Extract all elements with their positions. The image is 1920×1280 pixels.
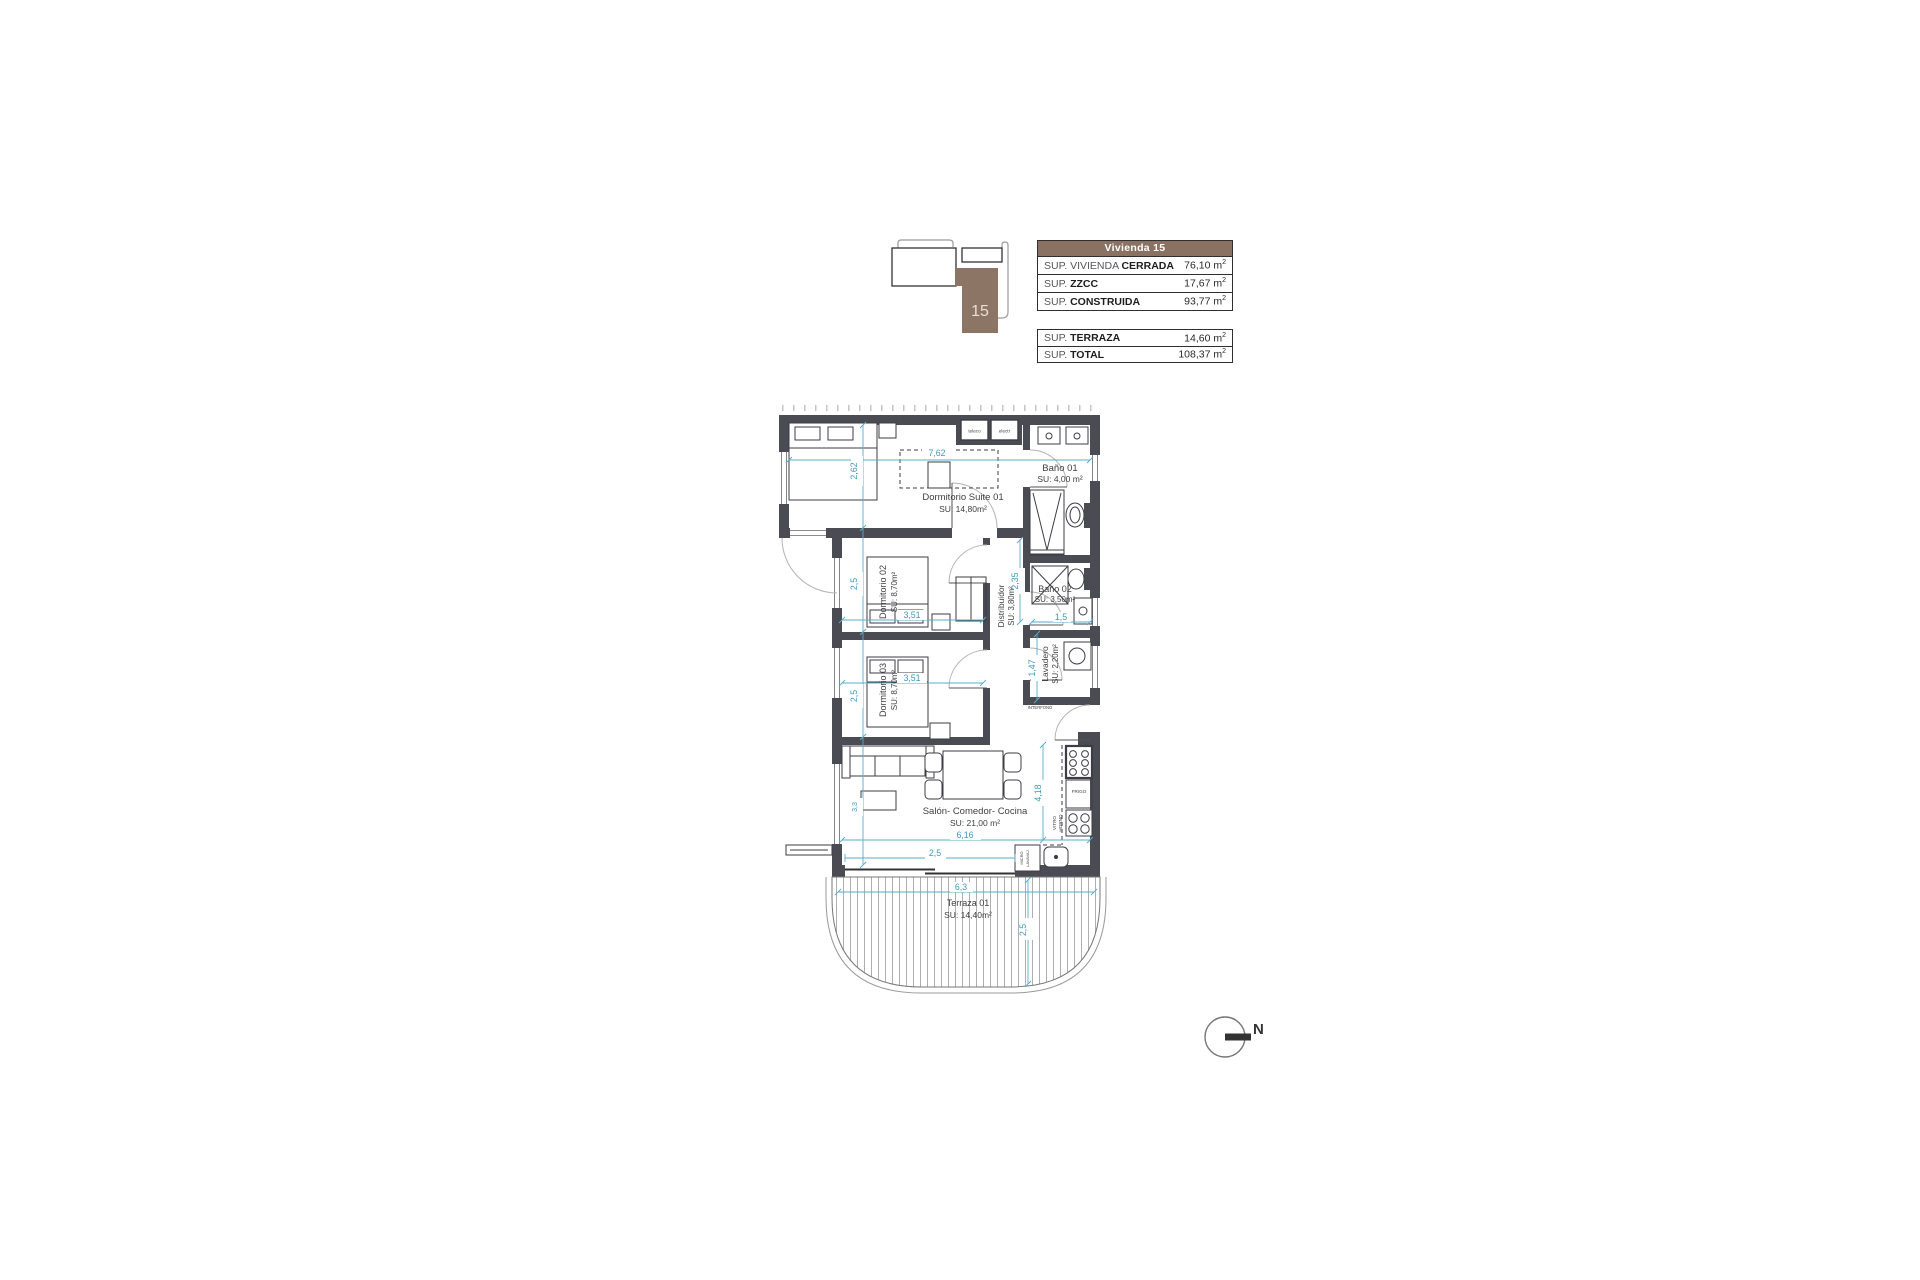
- room-area-dormitorio-03: SU: 8,70m²: [890, 669, 899, 710]
- room-area-bano-02: SU: 3,50m²: [1035, 595, 1076, 604]
- key-plan-unit-highlight: [955, 268, 998, 333]
- sofa: [842, 746, 934, 778]
- dim-dorm3-width: 3,51: [903, 673, 920, 683]
- label-vitro: VITRO: [1052, 816, 1057, 830]
- label-interfono: INTERFONO: [1028, 705, 1053, 710]
- dim-lavadero-depth: 1,47: [1027, 659, 1037, 676]
- sliding-door: [845, 865, 1015, 877]
- dim-dorm2-depth: 2,5: [849, 578, 859, 590]
- room-area-salon: SU: 21,00 m²: [950, 818, 1000, 828]
- floorplan-page: Vivienda 15 SUP. VIVIENDA CERRADA 76,10 …: [0, 0, 1920, 1280]
- dim-dorm3-depth: 2,5: [849, 690, 859, 702]
- room-label-dormitorio-suite-01: Dormitorio Suite 01: [922, 492, 1003, 503]
- terrace: [826, 877, 1106, 993]
- room-area-lavadero: SU: 2,20m²: [1051, 644, 1060, 684]
- room-area-distribuidor: SU: 3,80m²: [1007, 586, 1016, 626]
- north-arrow: N: [1205, 1017, 1264, 1057]
- nightstand: [930, 723, 950, 739]
- washbasin: [1074, 598, 1092, 624]
- fridge-cell: [1066, 780, 1092, 808]
- room-label-salon: Salón- Comedor- Cocina: [923, 806, 1028, 817]
- nightstand: [879, 423, 896, 438]
- wardrobe: [956, 577, 986, 621]
- window: [790, 528, 826, 538]
- window: [832, 648, 842, 698]
- north-arrow-bar: [1225, 1034, 1251, 1041]
- kitchen-sink: [1044, 847, 1068, 867]
- room-label-distribuidor: Distribuidor: [996, 584, 1006, 627]
- key-plan-block-b: [962, 248, 1002, 262]
- window: [779, 452, 789, 504]
- room-label-dormitorio-02: Dormitorio 02: [878, 565, 888, 619]
- key-plan: 15: [892, 240, 1008, 333]
- hob: [1066, 810, 1092, 836]
- dim-dorm2-width: 3,51: [903, 610, 920, 620]
- label-lavavajillas: LAVAVAJ.: [1025, 849, 1030, 867]
- kitchen-grid-appliance: [1066, 746, 1092, 778]
- door-arc-exterior-step: [782, 538, 837, 593]
- label-electr: electr: [999, 429, 1011, 434]
- coffee-table: [861, 791, 896, 810]
- dim-suite-width: 7,62: [928, 448, 945, 458]
- terrace-decking: [832, 877, 1100, 987]
- dim-cocina-depth: 4,18: [1033, 784, 1043, 801]
- north-label: N: [1253, 1021, 1264, 1038]
- room-area-bano-01: SU: 4,00 m²: [1037, 474, 1083, 484]
- dim-salon-door-width: 2,5: [929, 848, 941, 858]
- window: [832, 558, 842, 608]
- dim-terraza-width: 6,3: [955, 882, 967, 892]
- room-label-dormitorio-03: Dormitorio 03: [878, 663, 888, 717]
- door-arc-dorm3: [949, 650, 987, 688]
- key-plan-unit-number: 15: [971, 303, 989, 320]
- nightstand: [932, 614, 950, 630]
- vanity-sinks: [1038, 427, 1088, 444]
- room-area-dormitorio-suite-01: SU: 14,80m²: [939, 504, 987, 514]
- room-area-dormitorio-02: SU: 8,70m²: [890, 571, 899, 612]
- dim-salon-depth: 3,3: [852, 802, 859, 812]
- bed-suite: [789, 423, 877, 500]
- room-label-bano-01: Baño 01: [1042, 463, 1077, 474]
- key-plan-block-a: [892, 248, 956, 286]
- dim-bano2-width: 1,5: [1055, 612, 1067, 622]
- washing-machine: [1064, 642, 1091, 670]
- window: [832, 764, 842, 844]
- dim-salon-width: 6,16: [956, 830, 973, 840]
- room-label-bano-02: Baño 02: [1038, 584, 1072, 594]
- toilet-bano1: [1066, 503, 1094, 528]
- toilet-bano2: [1068, 568, 1094, 590]
- label-micro: MICRO: [1019, 851, 1024, 864]
- room-area-terraza: SU: 14,40m²: [944, 910, 992, 920]
- floor-plan-drawing: 15: [0, 0, 1920, 1280]
- shower-bano1: [1030, 490, 1064, 555]
- label-frigo: FRIGO: [1072, 789, 1087, 794]
- label-horno: HORNO: [1058, 814, 1063, 832]
- room-label-lavadero: Lavadero: [1040, 646, 1050, 682]
- dining-table: [925, 751, 1021, 799]
- dim-suite-depth: 2,62: [849, 462, 859, 479]
- room-label-terraza: Terraza 01: [947, 898, 990, 908]
- sideboard: [786, 845, 832, 855]
- label-teleco: teleco: [968, 429, 981, 434]
- dim-terraza-depth: 2,5: [1018, 924, 1028, 936]
